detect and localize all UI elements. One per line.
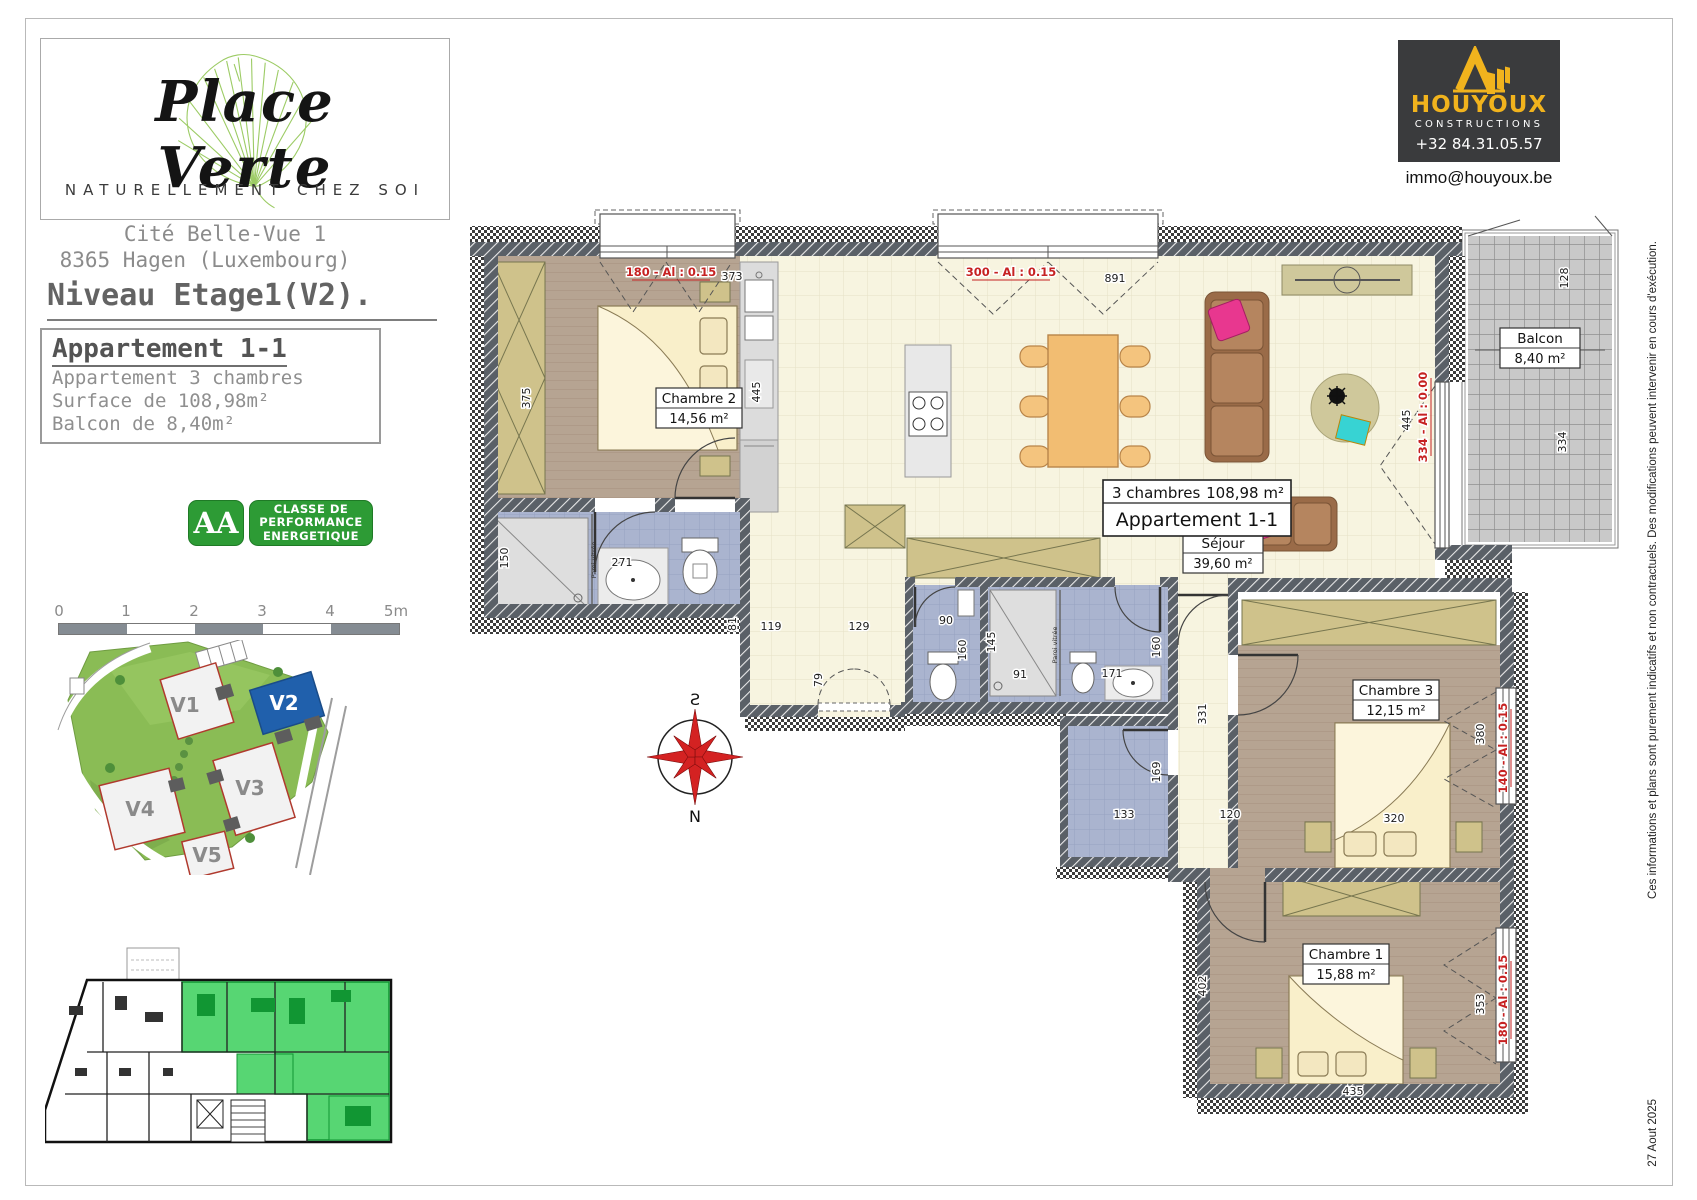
site-label-v2: V2 (269, 691, 298, 715)
compass-south: S (690, 690, 700, 709)
sofa-main (1205, 292, 1269, 462)
label-sejour: Séjour 39,60 m² (1183, 533, 1263, 573)
scale-bar-track (58, 623, 400, 635)
builder-subtitle: CONSTRUCTIONS (1415, 119, 1543, 130)
apartment-info-box: Appartement 1-1 Appartement 3 chambres S… (40, 328, 381, 444)
energy-label-line1: CLASSE DE (274, 503, 348, 517)
kitchen-sink (745, 280, 773, 312)
margin-disclaimer: Ces informations et plans sont purement … (1647, 241, 1659, 899)
svg-text:Balcon: Balcon (1517, 331, 1563, 347)
window-label-chambre3: 140 - Al : 0.15 (1496, 703, 1510, 794)
dim-128: 128 (1558, 268, 1571, 289)
dim-331: 331 (1196, 704, 1209, 725)
dim-171: 171 (1102, 667, 1123, 680)
label-chambre3: Chambre 3 12,15 m² (1353, 680, 1439, 720)
apartment-surface: Surface de 108,98m² (52, 390, 369, 413)
dim-145: 145 (985, 632, 998, 653)
svg-text:12,15 m²: 12,15 m² (1366, 704, 1425, 719)
mini-plan (45, 886, 397, 1144)
builder-logo-box: HOUYOUX CONSTRUCTIONS +32 84.31.05.57 (1398, 40, 1560, 162)
svg-text:15,88 m²: 15,88 m² (1316, 968, 1375, 983)
label-chambre2: Chambre 2 14,56 m² (656, 388, 742, 428)
toilet-2 (1070, 652, 1096, 693)
margin-date: 27 Aout 2025 (1647, 1099, 1659, 1167)
compass-north: N (689, 807, 701, 826)
dim-891: 891 (1105, 272, 1126, 285)
scale-tick-0: 0 (54, 602, 64, 620)
svg-text:Chambre 2: Chambre 2 (662, 391, 736, 407)
site-label-v3: V3 (235, 776, 264, 800)
balcony (1462, 216, 1618, 548)
dining-set (1020, 335, 1150, 467)
svg-text:Chambre 1: Chambre 1 (1309, 947, 1383, 963)
summary-type: 3 chambres (1112, 484, 1200, 502)
margin-disclaimer-wrap: Ces informations et plans sont purement … (1642, 60, 1664, 1080)
dim-380: 380 (1474, 724, 1487, 745)
dim-271: 271 (612, 556, 633, 569)
svg-text:14,56 m²: 14,56 m² (669, 412, 728, 427)
builder-house-icon (1447, 46, 1511, 94)
svg-text:Chambre 3: Chambre 3 (1359, 683, 1433, 699)
summary-area: 108,98 m² (1206, 484, 1284, 502)
window-label-sejour: 300 - Al : 0.15 (966, 265, 1057, 279)
logo-box: Place Verte NATURELLEMENT CHEZ SOI (40, 38, 450, 220)
window-label-balcon: 334 - Al : 0.00 (1416, 372, 1430, 463)
level-title: Niveau Etage1(V2). (47, 278, 437, 321)
apartment-balcony: Balcon de 8,40m² (52, 413, 369, 436)
dim-320: 320 (1384, 812, 1405, 825)
dim-373: 373 (722, 270, 743, 283)
label-chambre1: Chambre 1 15,88 m² (1303, 944, 1389, 984)
label-balcon: Balcon 8,40 m² (1500, 328, 1580, 368)
site-label-v1: V1 (170, 693, 199, 717)
energy-badge: AA CLASSE DE PERFORMANCE ENERGETIQUE (188, 500, 373, 546)
apartment-title: Appartement 1-1 (52, 334, 287, 367)
summary-name: Appartement 1-1 (1116, 509, 1278, 531)
bed-chambre2 (598, 282, 737, 476)
builder-name: HOUYOUX (1411, 94, 1547, 117)
dim-120: 120 (1220, 808, 1241, 821)
dim-150: 150 (498, 548, 511, 569)
dim-445a: 445 (750, 382, 763, 403)
site-label-v5: V5 (192, 843, 221, 867)
sideboard (1282, 265, 1412, 295)
dim-160a: 160 (956, 640, 969, 661)
energy-label: CLASSE DE PERFORMANCE ENERGETIQUE (249, 500, 373, 546)
address-line-1: Cité Belle-Vue 1 (60, 222, 390, 246)
dim-334: 334 (1556, 432, 1569, 453)
svg-text:8,40 m²: 8,40 m² (1515, 352, 1566, 367)
apartment-type: Appartement 3 chambres (52, 367, 369, 390)
svg-text:39,60 m²: 39,60 m² (1193, 557, 1252, 572)
margin-date-wrap: 27 Aout 2025 (1642, 1085, 1664, 1180)
scale-tick-1: 1 (121, 602, 131, 620)
site-plan: V1 V2 V3 V4 V5 (50, 640, 350, 875)
dim-445b: 445 (1400, 410, 1413, 431)
brand-tagline: NATURELLEMENT CHEZ SOI (51, 181, 439, 199)
svg-text:Séjour: Séjour (1202, 536, 1245, 552)
compass-rose: S N (647, 690, 743, 826)
dim-353: 353 (1474, 994, 1487, 1015)
scale-tick-2: 2 (189, 602, 199, 620)
dim-129: 129 (849, 620, 870, 633)
dim-160b: 160 (1150, 637, 1163, 658)
note-paroi-1: Paroi vitrée (590, 542, 598, 579)
scale-bar: 0 1 2 3 4 5m (58, 602, 400, 638)
address-line-2: 8365 Hagen (Luxembourg) (40, 248, 370, 272)
dim-90: 90 (939, 614, 953, 627)
window-label-chambre1: 180 - Al : 0.15 (1496, 955, 1510, 1046)
energy-label-line3: ENERGETIQUE (263, 530, 359, 544)
energy-label-line2: PERFORMANCE (259, 516, 362, 530)
floor-plan: .dim{font:11px "DejaVu Sans";fill:#1b1b1… (460, 200, 1635, 1145)
window-label-chambre2: 180 - Al : 0.15 (626, 265, 717, 279)
scale-tick-5: 5m (384, 602, 408, 620)
dim-435: 435 (1343, 1085, 1364, 1098)
energy-grade: AA (188, 500, 244, 546)
dim-133: 133 (1114, 808, 1135, 821)
dim-91: 91 (1013, 668, 1027, 681)
dim-402: 402 (1196, 976, 1209, 997)
builder-email: immo@houyoux.be (1394, 168, 1564, 188)
scale-tick-4: 4 (325, 602, 335, 620)
dim-375: 375 (520, 388, 533, 409)
dim-79: 79 (812, 673, 825, 687)
dim-119: 119 (761, 620, 782, 633)
scale-tick-3: 3 (257, 602, 267, 620)
summary-box: 3 chambres 108,98 m² Appartement 1-1 (1103, 480, 1291, 536)
dining-table (1048, 335, 1118, 467)
toilet-1 (682, 538, 718, 594)
builder-phone: +32 84.31.05.57 (1415, 135, 1542, 153)
dim-81: 81 (726, 617, 739, 631)
note-paroi-2: Paroi vitrée (1051, 627, 1059, 664)
site-label-v4: V4 (125, 797, 154, 821)
plan-sheet: { "colors": { "energy_green": "#2d9b35",… (0, 0, 1697, 1200)
dim-169: 169 (1150, 762, 1163, 783)
